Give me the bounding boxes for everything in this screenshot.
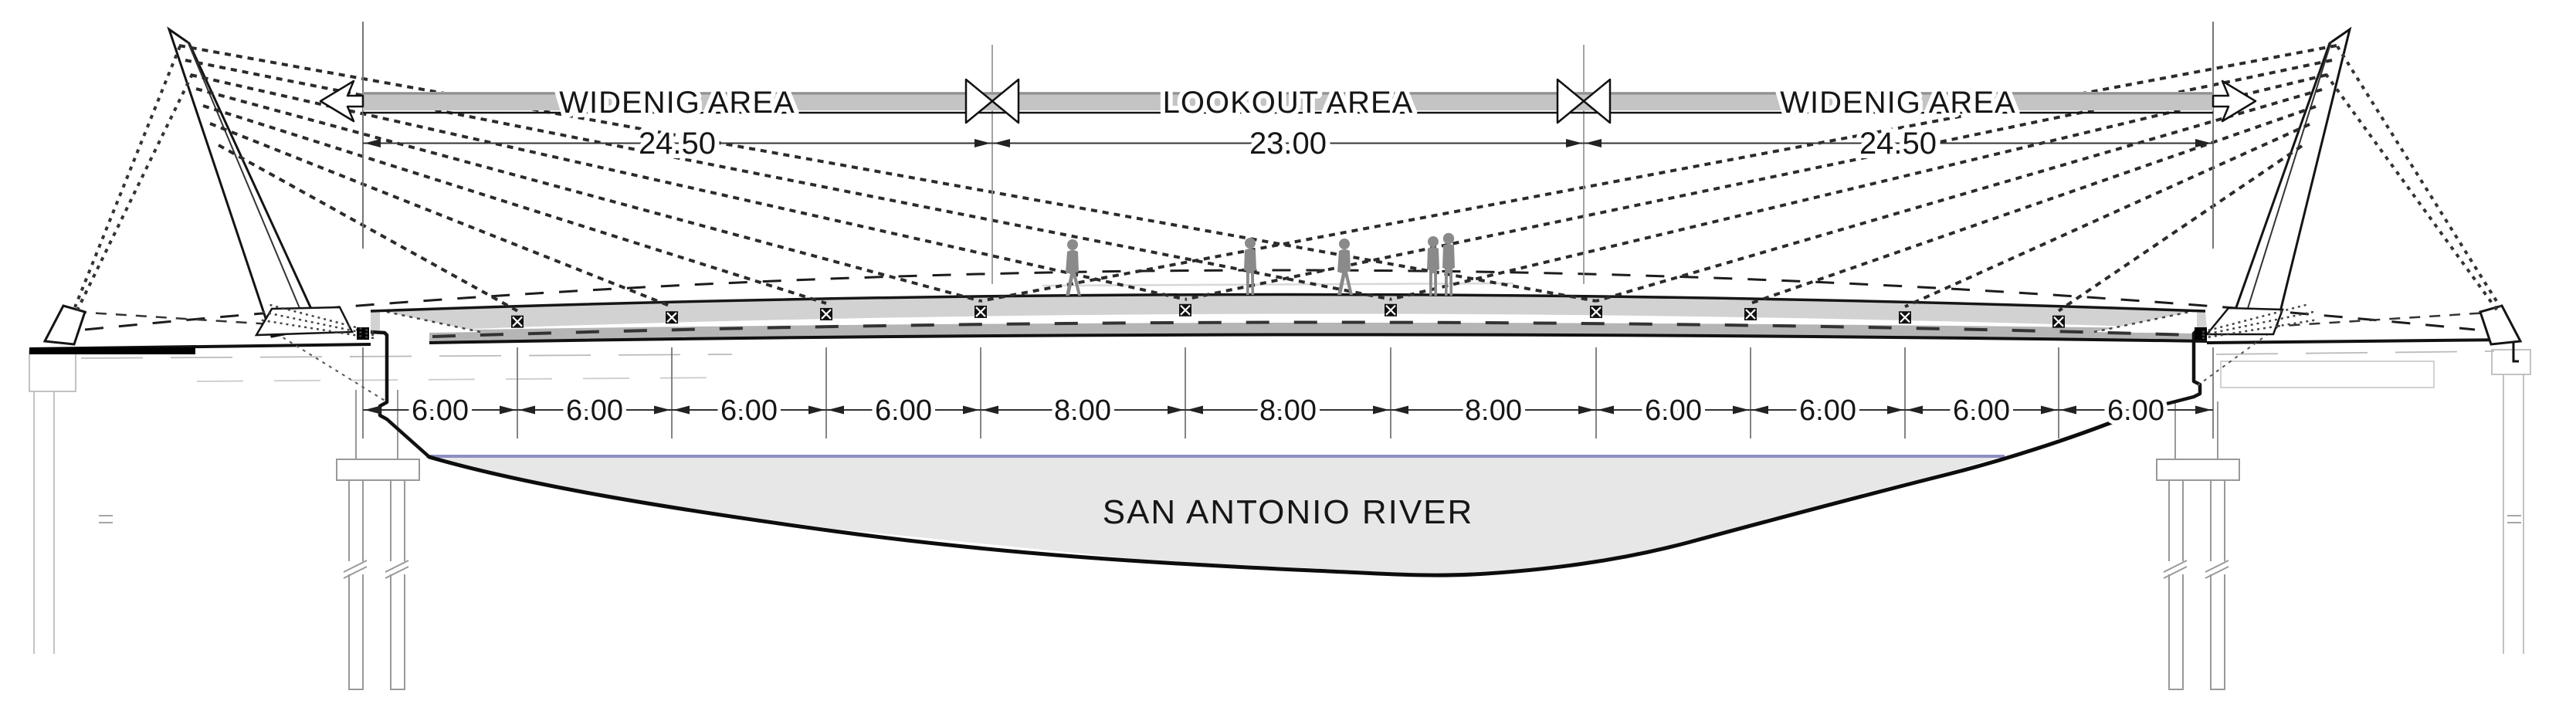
dim-arrowhead (2041, 406, 2057, 415)
right-abutment-footing (2492, 350, 2530, 374)
span-dim: 6.00 (566, 394, 623, 427)
dim-24-50-right: 24.50 (1859, 127, 1937, 161)
junction-triangle (992, 80, 1019, 123)
dim-arrowhead (1168, 406, 1184, 415)
dim-arrowhead (974, 139, 991, 147)
stay-cable (1751, 107, 2316, 303)
hidden-ground-line (2216, 351, 2494, 354)
figure-head (1443, 233, 1454, 244)
dim-arrowhead (982, 406, 998, 415)
dim-arrowhead (500, 406, 516, 415)
area-label-widening-right: WIDENIG AREA (1780, 86, 2015, 120)
pedestrian-standing (1427, 236, 1439, 296)
dim-arrowhead (1392, 406, 1408, 415)
left-abutment-footing (29, 351, 76, 391)
pier-column (391, 480, 405, 689)
deck-bearing-block (2195, 327, 2207, 340)
pedestrian-walking (1066, 239, 1081, 296)
right-abutment (2216, 350, 2530, 654)
pier-cap (337, 459, 419, 480)
stay-cable (981, 46, 2337, 301)
stay-cable (179, 46, 1596, 301)
dim-arrowhead (2060, 406, 2076, 415)
hidden-wall-outline (2221, 361, 2434, 388)
pedestrians (1066, 233, 1455, 296)
dim-arrowhead (1578, 406, 1595, 415)
dim-arrowhead (364, 139, 381, 147)
figure-body (1337, 249, 1353, 295)
span-dim: 6.00 (1645, 394, 1702, 427)
dim-arrowhead (1752, 406, 1768, 415)
top-dimension-line: 24.50 23.00 24.50 (363, 127, 2213, 161)
figure-head (1339, 239, 1350, 249)
hidden-ground-line (197, 378, 732, 381)
pier-cap (2157, 459, 2239, 480)
dim-arrowhead (1585, 139, 1602, 147)
pylon-foot (256, 307, 352, 335)
figure-head (1245, 238, 1256, 249)
junction-triangle (1584, 80, 1610, 123)
backstay-cable (2337, 46, 2500, 307)
dim-arrowhead (963, 406, 979, 415)
pier-column (2169, 480, 2183, 689)
span-dim: 6.00 (1799, 394, 1856, 427)
backstay-cable (75, 46, 180, 307)
figure-head (1428, 236, 1439, 247)
bridge-elevation-drawing: SAN ANTONIO RIVER (0, 0, 2576, 711)
dim-24-50-left: 24.50 (639, 127, 716, 161)
stay-cable (196, 89, 981, 301)
dim-arrowhead (1907, 406, 1923, 415)
span-dim: 8.00 (1054, 394, 1111, 427)
span-dim: 8.00 (1259, 394, 1317, 427)
pedestrian-walking (1337, 239, 1353, 295)
dim-arrowhead (1566, 139, 1582, 147)
bridge-deck (29, 270, 2519, 457)
span-dim: 6.00 (720, 394, 778, 427)
dim-arrowhead (808, 406, 825, 415)
pylon-inner-edge (188, 42, 307, 327)
dim-arrowhead (1373, 406, 1389, 415)
figure-head (1067, 239, 1078, 250)
hidden-ground-line (81, 354, 732, 358)
backstay-anchor-block (45, 306, 85, 344)
backstay-cable (2326, 74, 2497, 310)
pier-column (349, 480, 363, 689)
dim-arrowhead (1887, 406, 1903, 415)
river-label: SAN ANTONIO RIVER (1103, 493, 1474, 531)
junction-triangle (1557, 80, 1584, 123)
span-dim: 6.00 (1953, 394, 2010, 427)
area-label-lookout: LOOKOUT AREA (1163, 86, 1414, 120)
right-approach-deck-line (2207, 340, 2513, 343)
left-abutment (29, 351, 732, 654)
stay-cable (203, 106, 826, 303)
right-pier (2157, 401, 2239, 689)
span-dim: 6.00 (2107, 394, 2164, 427)
banner-right-arrow (2213, 81, 2256, 121)
dim-arrowhead (519, 406, 535, 415)
dim-arrowhead (673, 406, 690, 415)
backstay-cable (77, 74, 192, 310)
junction-triangle (966, 80, 992, 123)
dim-arrowhead (1598, 406, 1614, 415)
span-dim: 8.00 (1465, 394, 1522, 427)
area-banner: WIDENIG AREA LOOKOUT AREA WIDENIG AREA (320, 80, 2256, 123)
span-dim: 6.00 (875, 394, 932, 427)
dim-arrowhead (994, 139, 1010, 147)
dim-arrowhead (828, 406, 844, 415)
pier-column (2211, 480, 2225, 689)
area-label-widening-left: WIDENIG AREA (559, 86, 795, 120)
dim-arrowhead (654, 406, 670, 415)
span-dim: 6.00 (412, 394, 469, 427)
dim-arrowhead (1187, 406, 1203, 415)
dim-arrowhead (2195, 406, 2212, 415)
left-approach-deck-thick (29, 347, 195, 354)
dim-arrowhead (364, 406, 381, 415)
dim-arrowhead (1733, 406, 1749, 415)
left-pylon (45, 29, 374, 344)
dim-23-00: 23.00 (1249, 127, 1327, 161)
bottom-dimension-chain: 6.00 6.00 6.00 6.00 8.00 8.00 8.00 6.00 … (363, 347, 2213, 438)
pylon-body (2227, 29, 2350, 333)
